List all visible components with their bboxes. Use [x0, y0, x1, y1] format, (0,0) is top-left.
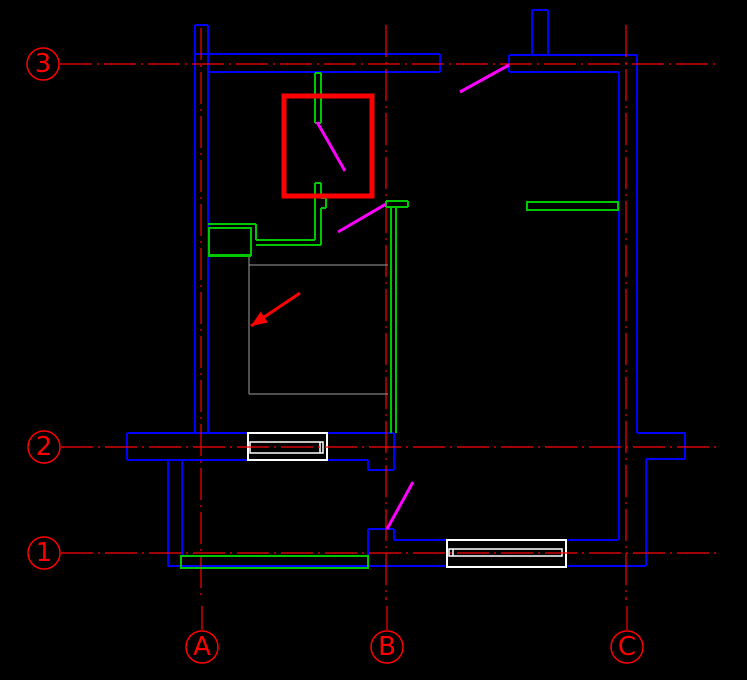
axis-label: B: [378, 632, 396, 662]
door-leaf-line[interactable]: [317, 122, 345, 171]
cad-viewport[interactable]: 321ABC: [0, 0, 747, 680]
highlight-rectangle[interactable]: [284, 96, 372, 196]
fixture-sink-inner[interactable]: [209, 228, 251, 255]
door-leaf-line[interactable]: [460, 65, 509, 92]
axis-label: 1: [36, 538, 53, 568]
axis-label: 3: [35, 49, 52, 79]
axis-label: 2: [36, 432, 53, 462]
annotation-arrow-head: [251, 312, 268, 326]
fixture-shelf[interactable]: [527, 202, 618, 210]
axis-label: C: [618, 632, 636, 662]
axis-label: A: [193, 632, 211, 662]
door-leaf-line[interactable]: [338, 204, 386, 232]
door-leaf-line[interactable]: [387, 482, 413, 529]
floor-plan-drawing[interactable]: 321ABC: [0, 0, 747, 680]
